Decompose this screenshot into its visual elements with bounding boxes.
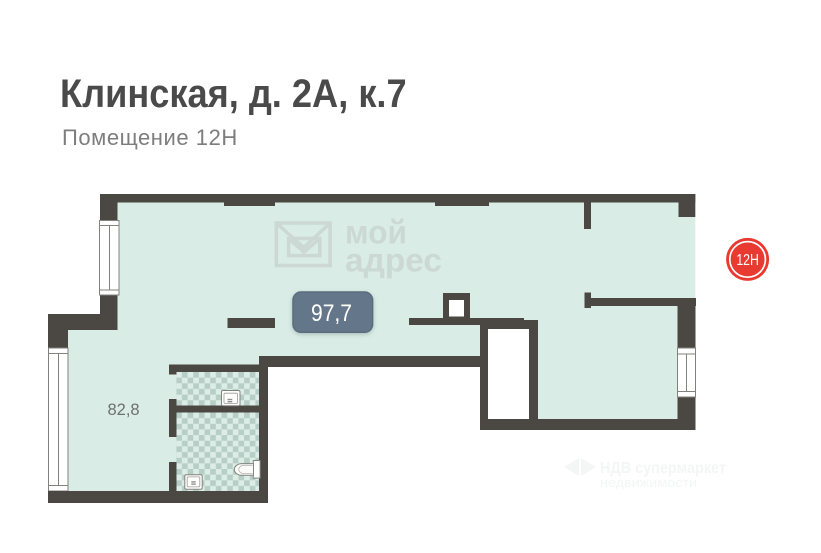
svg-text:97,7: 97,7: [311, 300, 352, 327]
svg-text:недвижимости: недвижимости: [600, 475, 697, 490]
svg-text:12Н: 12Н: [736, 252, 759, 269]
svg-text:адрес: адрес: [345, 243, 442, 280]
svg-text:82,8: 82,8: [108, 401, 140, 419]
